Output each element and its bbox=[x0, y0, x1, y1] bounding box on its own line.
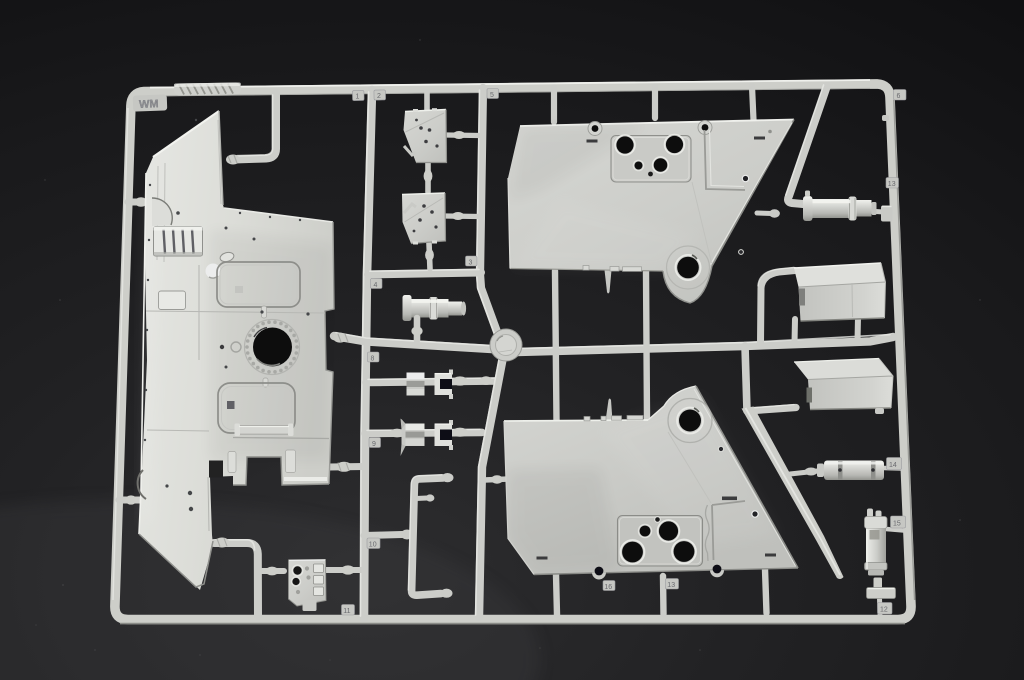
svg-text:8: 8 bbox=[371, 355, 375, 362]
svg-text:2: 2 bbox=[377, 93, 381, 100]
svg-text:6: 6 bbox=[897, 93, 901, 100]
svg-text:1: 1 bbox=[356, 94, 360, 101]
svg-text:15: 15 bbox=[893, 521, 901, 528]
svg-text:14: 14 bbox=[889, 462, 897, 469]
svg-text:4: 4 bbox=[374, 282, 378, 289]
svg-text:9: 9 bbox=[372, 441, 376, 448]
svg-text:13: 13 bbox=[667, 582, 675, 589]
svg-text:WM: WM bbox=[139, 98, 159, 111]
svg-text:16: 16 bbox=[604, 584, 612, 591]
svg-text:11: 11 bbox=[343, 608, 350, 615]
svg-text:13: 13 bbox=[888, 181, 896, 188]
svg-text:5: 5 bbox=[490, 92, 494, 99]
svg-text:10: 10 bbox=[369, 542, 377, 549]
svg-text:12: 12 bbox=[880, 607, 888, 614]
svg-text:3: 3 bbox=[469, 259, 473, 266]
